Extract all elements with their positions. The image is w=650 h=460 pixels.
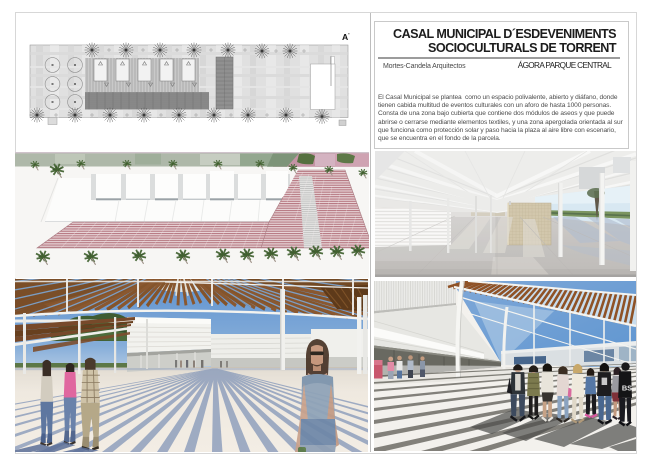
svg-text:BS: BS [622,384,632,393]
svg-text:A': A' [342,32,350,42]
